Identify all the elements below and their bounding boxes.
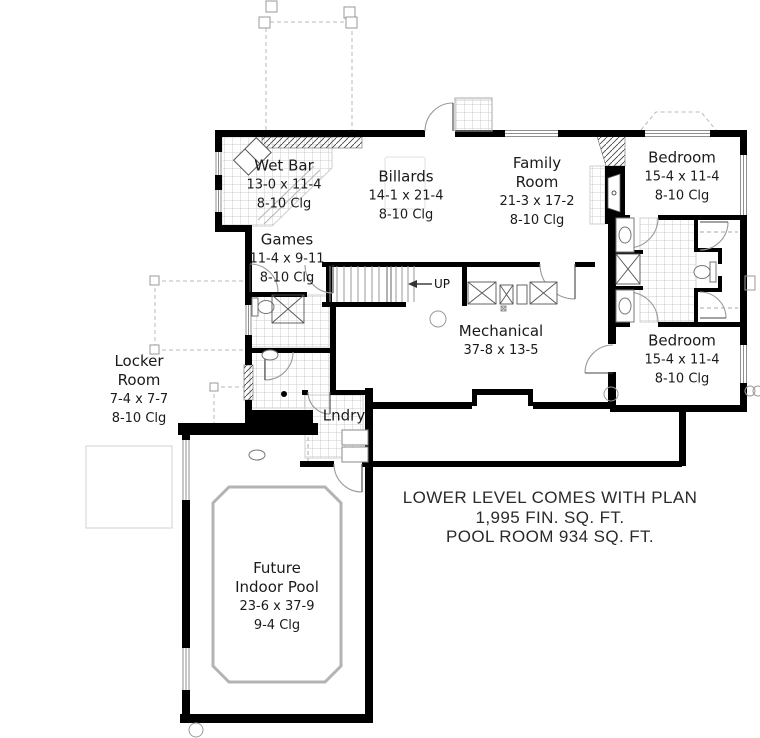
room-dims: 15-4 x 11-4: [645, 168, 720, 187]
room-ceiling: 8-10 Clg: [250, 269, 325, 288]
room-ceiling: 9-4 Clg: [235, 616, 319, 635]
room-label-games: Games 11-4 x 9-11 8-10 Clg: [250, 231, 325, 288]
room-name: Lndry: [323, 407, 365, 426]
mechanical-equipment: [468, 282, 557, 311]
floor-plan: Wet Bar 13-0 x 11-4 8-10 Clg Billards 14…: [0, 0, 760, 738]
plan-note-line1: LOWER LEVEL COMES WITH PLAN: [403, 488, 698, 508]
room-dims: 21-3 x 17-2: [500, 192, 575, 211]
room-dims: 14-1 x 21-4: [369, 187, 444, 206]
room-name: Games: [250, 231, 325, 250]
deck-outline-left: [155, 281, 245, 425]
room-ceiling: 8-10 Clg: [247, 195, 322, 214]
room-ceiling: 8-10 Clg: [110, 409, 168, 428]
room-label-locker-room: Locker Room 7-4 x 7-7 8-10 Clg: [110, 352, 168, 428]
room-dims: 11-4 x 9-11: [250, 250, 325, 269]
room-name: Wet Bar: [247, 157, 322, 176]
room-name: Locker Room: [110, 352, 168, 390]
room-dims: 13-0 x 11-4: [247, 176, 322, 195]
room-name: Future Indoor Pool: [235, 559, 319, 597]
room-ceiling: 8-10 Clg: [645, 370, 720, 389]
room-name: Bedroom: [645, 149, 720, 168]
room-label-mechanical: Mechanical 37-8 x 13-5: [459, 322, 543, 360]
room-name: Bedroom: [645, 332, 720, 351]
room-ceiling: 8-10 Clg: [369, 206, 444, 225]
room-name: Billards: [369, 168, 444, 187]
room-dims: 15-4 x 11-4: [645, 351, 720, 370]
fireplace: [608, 174, 620, 212]
plan-note-line3: POOL ROOM 934 SQ. FT.: [403, 527, 698, 547]
room-name: Family Room: [500, 154, 575, 192]
window-well-left: [86, 446, 172, 528]
room-label-bedroom-top: Bedroom 15-4 x 11-4 8-10 Clg: [645, 149, 720, 206]
room-dims: 23-6 x 37-9: [235, 597, 319, 616]
toilet-right: [694, 262, 716, 282]
room-label-pool: Future Indoor Pool 23-6 x 37-9 9-4 Clg: [235, 559, 319, 635]
room-name: Mechanical: [459, 322, 543, 341]
stairs-up-label: UP: [434, 277, 450, 291]
room-label-laundry: Lndry: [323, 407, 365, 426]
room-dims: 37-8 x 13-5: [459, 341, 543, 360]
room-dims: 7-4 x 7-7: [110, 390, 168, 409]
room-label-bedroom-bottom: Bedroom 15-4 x 11-4 8-10 Clg: [645, 332, 720, 389]
room-ceiling: 8-10 Clg: [500, 211, 575, 230]
plan-note: LOWER LEVEL COMES WITH PLAN 1,995 FIN. S…: [403, 488, 698, 547]
room-label-billards: Billards 14-1 x 21-4 8-10 Clg: [369, 168, 444, 225]
room-ceiling: 8-10 Clg: [645, 187, 720, 206]
vanities-right-bath: [616, 218, 634, 322]
room-label-family-room: Family Room 21-3 x 17-2 8-10 Clg: [500, 154, 575, 230]
room-label-wet-bar: Wet Bar 13-0 x 11-4 8-10 Clg: [247, 157, 322, 214]
stairs-up-arrow: [408, 280, 432, 288]
plan-note-line2: 1,995 FIN. SQ. FT.: [403, 507, 698, 527]
stairs: [330, 266, 414, 302]
floor-dot: [281, 391, 287, 397]
